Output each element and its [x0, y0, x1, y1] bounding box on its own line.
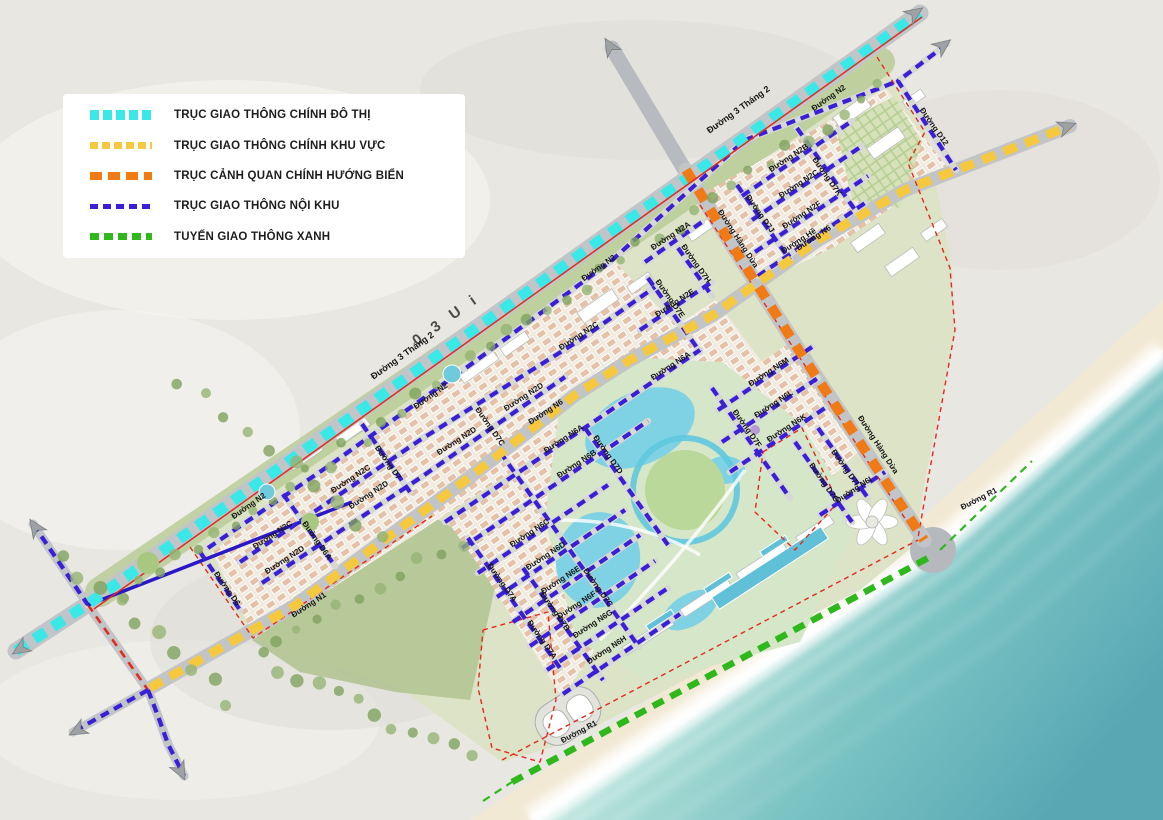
tree: [521, 314, 533, 326]
tree: [617, 256, 625, 264]
tree: [449, 738, 460, 749]
tree: [185, 664, 197, 676]
legend-item: TRỤC GIAO THÔNG NỘI KHU: [63, 191, 465, 221]
tree: [209, 673, 222, 686]
tree: [336, 438, 346, 448]
tree: [873, 79, 882, 88]
tree: [313, 615, 322, 624]
tree: [292, 626, 300, 634]
legend-item-label: TRỤC GIAO THÔNG NỘI KHU: [174, 200, 340, 212]
tree: [171, 379, 182, 390]
legend-item: TRỤC CẢNH QUAN CHÍNH HƯỚNG BIỂN: [63, 161, 465, 191]
tree: [290, 674, 303, 687]
tree: [458, 541, 469, 552]
legend-item: TRỤC GIAO THÔNG CHÍNH KHU VỰC: [63, 130, 465, 160]
tree: [437, 550, 447, 560]
tree: [543, 306, 552, 315]
tree: [408, 728, 418, 738]
tree: [307, 480, 320, 493]
tree: [582, 285, 593, 296]
tree: [334, 686, 344, 696]
tree: [368, 708, 381, 721]
tree: [208, 527, 219, 538]
tree: [689, 205, 699, 215]
tree: [194, 545, 204, 555]
legend-swatch-4: [90, 204, 152, 209]
tree: [376, 417, 386, 427]
tree: [726, 181, 736, 191]
tree: [331, 495, 345, 509]
tree: [779, 140, 790, 151]
tree: [349, 519, 362, 532]
legend-swatch-3: [90, 172, 152, 180]
tree: [218, 412, 228, 422]
tree: [243, 427, 253, 437]
tree: [465, 350, 476, 361]
tree: [270, 636, 282, 648]
legend-item-label: TUYẾN GIAO THÔNG XANH: [174, 231, 330, 243]
legend-panel: TRỤC GIAO THÔNG CHÍNH ĐÔ THỊTRỤC GIAO TH…: [63, 94, 465, 258]
tree: [822, 124, 833, 135]
tree: [58, 550, 70, 562]
legend-item-label: TRỤC GIAO THÔNG CHÍNH KHU VỰC: [174, 140, 385, 152]
tree: [839, 110, 850, 121]
tree: [501, 324, 513, 336]
legend-item-label: TRỤC CẢNH QUAN CHÍNH HƯỚNG BIỂN: [174, 170, 404, 182]
tree: [169, 549, 181, 561]
tree: [486, 342, 495, 351]
tree: [857, 96, 865, 104]
legend-item: TRỤC GIAO THÔNG CHÍNH ĐÔ THỊ: [63, 100, 465, 130]
tree: [129, 618, 141, 630]
lotus-core: [866, 516, 878, 528]
legend-item: TUYẾN GIAO THÔNG XANH: [63, 222, 465, 252]
legend-swatch-1: [90, 110, 152, 120]
tree: [562, 295, 572, 305]
tree: [134, 576, 143, 585]
tree: [364, 438, 373, 447]
tree: [411, 552, 423, 564]
tree: [232, 522, 240, 530]
tree: [271, 666, 284, 679]
tree: [220, 700, 231, 711]
tree: [467, 750, 478, 761]
tree: [117, 594, 128, 605]
legend-swatch-5: [90, 233, 152, 240]
park-green: [137, 552, 159, 574]
tree: [301, 464, 309, 472]
tree: [70, 572, 83, 585]
legend-swatch-2: [90, 142, 152, 149]
tree: [377, 531, 388, 542]
tree: [263, 445, 275, 457]
tree: [428, 732, 440, 744]
tree: [330, 600, 340, 610]
tree: [258, 647, 269, 658]
tree: [285, 482, 295, 492]
tree: [743, 166, 752, 175]
tree: [354, 694, 364, 704]
tree: [325, 462, 337, 474]
tree: [396, 572, 406, 582]
tree: [290, 456, 303, 469]
tree: [94, 581, 108, 595]
waterpark-island: [645, 450, 725, 530]
tree: [152, 625, 166, 639]
masterplan-page: Đường 3 Tháng 2Đường 3 Tháng 20 3 U iĐườ…: [0, 0, 1163, 820]
tree: [201, 388, 211, 398]
tree: [707, 192, 718, 203]
tree: [313, 676, 326, 689]
tree: [386, 724, 397, 735]
tree: [397, 409, 406, 418]
tree: [630, 237, 640, 247]
tree: [355, 594, 365, 604]
legend-item-label: TRỤC GIAO THÔNG CHÍNH ĐÔ THỊ: [174, 109, 371, 121]
tree: [167, 646, 180, 659]
tree: [375, 583, 387, 595]
pond: [443, 365, 461, 383]
